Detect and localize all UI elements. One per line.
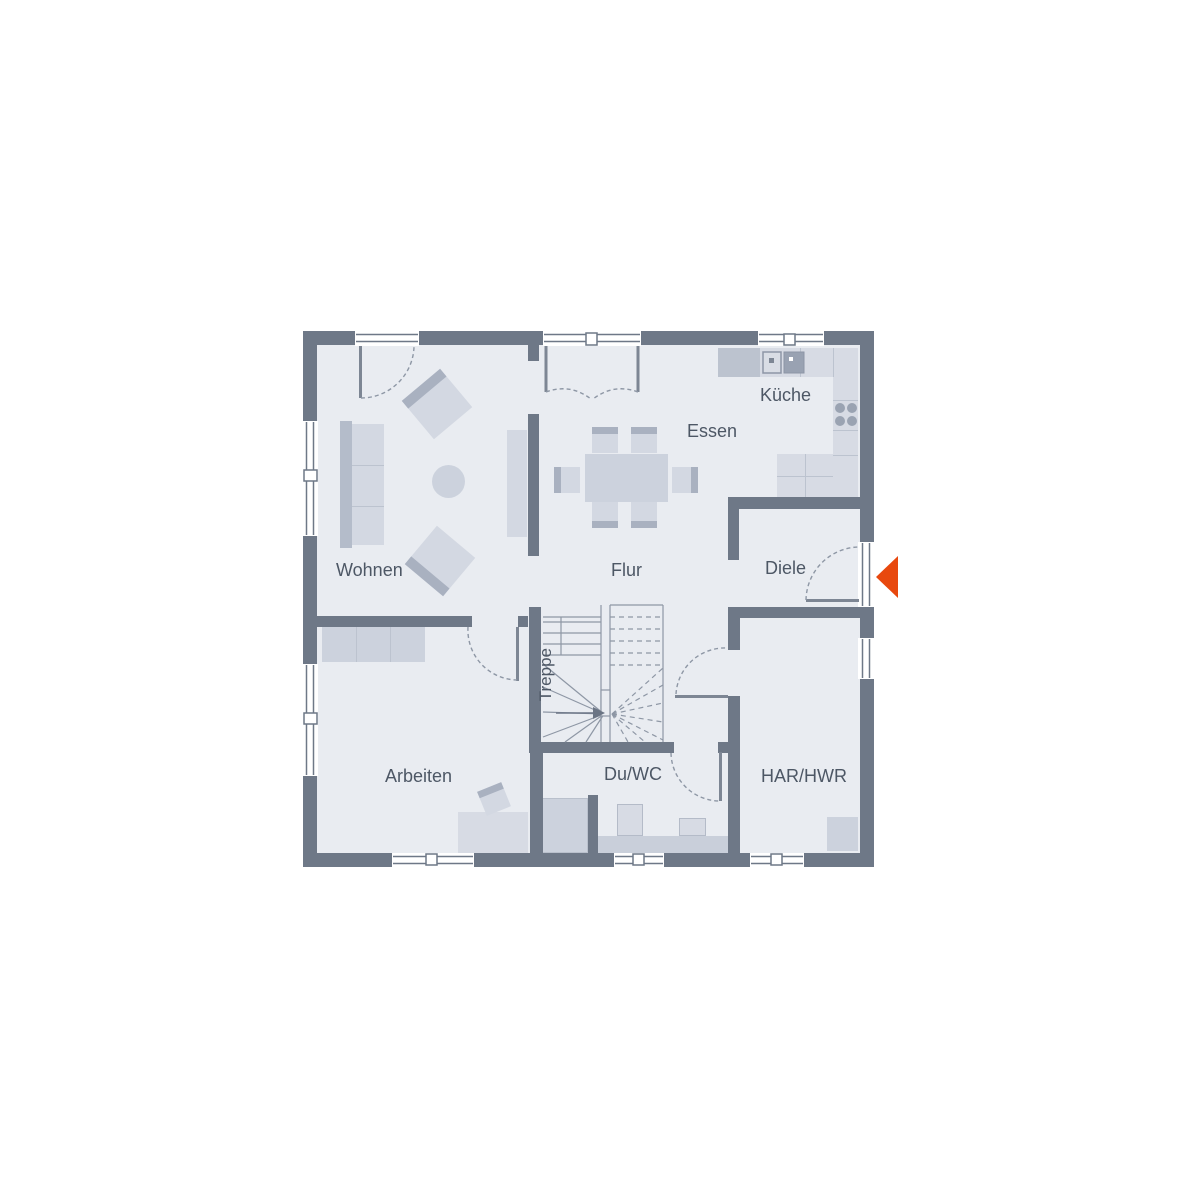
cooktop-burners xyxy=(835,403,857,426)
floor-plan-canvas: Wohnen Essen Küche Flur Diele Treppe Arb… xyxy=(0,0,1200,1200)
staircase xyxy=(543,605,663,742)
entrance-arrow-icon xyxy=(876,556,898,598)
room-label-essen: Essen xyxy=(687,421,737,441)
stair-treads-lower xyxy=(543,605,663,742)
stair-treads-upper-dashed xyxy=(610,617,663,742)
room-label-flur: Flur xyxy=(611,560,642,580)
faucet-dot xyxy=(789,357,793,361)
room-label-diele: Diele xyxy=(765,558,806,578)
room-label-duwc: Du/WC xyxy=(604,764,662,784)
room-label-wohnen: Wohnen xyxy=(336,560,403,580)
linework-overlay xyxy=(0,0,1200,1200)
sink-bowl xyxy=(784,352,804,373)
room-label-harhwr: HAR/HWR xyxy=(761,766,847,786)
room-label-treppe: Treppe xyxy=(536,648,556,701)
room-label-kueche: Küche xyxy=(760,385,811,405)
room-label-arbeiten: Arbeiten xyxy=(385,766,452,786)
sink-drain-dot xyxy=(769,358,774,363)
